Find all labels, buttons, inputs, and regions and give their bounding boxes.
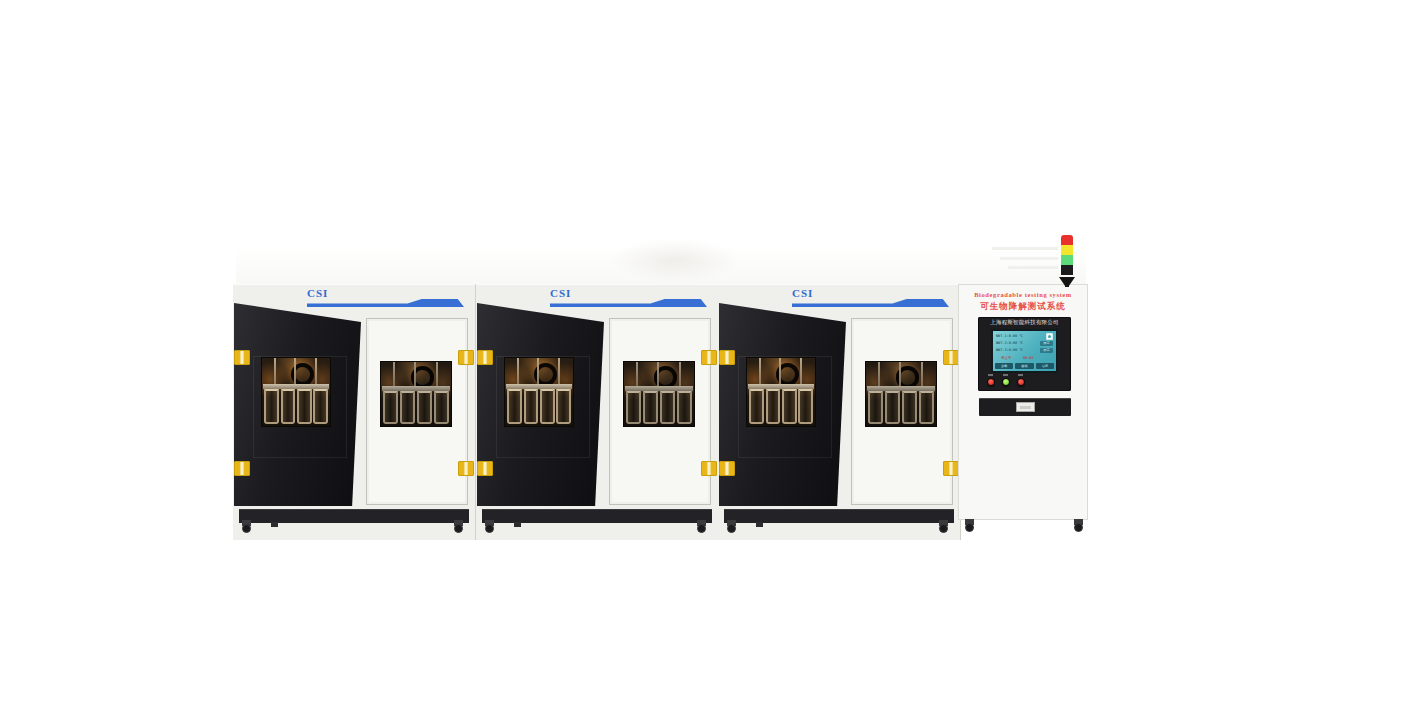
chamber-door-white — [366, 318, 468, 505]
hmi-set-button-2[interactable]: 设定 — [1040, 348, 1053, 353]
company-name: 上海程斯智能科技有限公司 — [978, 319, 1071, 326]
chamber-window — [380, 361, 452, 427]
chamber-door-white — [609, 318, 711, 505]
reactor-bottle — [766, 389, 781, 424]
stirrer-rod — [679, 362, 681, 388]
button-label-mark — [1018, 374, 1023, 376]
hmi-button-row: 参数 曲线 启停 — [995, 363, 1054, 369]
reactor-bottle — [868, 391, 883, 424]
stirrer-rod — [779, 358, 781, 385]
door-hinge-yellow — [458, 350, 474, 365]
power-button[interactable] — [1017, 378, 1025, 386]
chamber-door-white — [851, 318, 953, 505]
reactor-bottle — [297, 389, 312, 424]
caster-wheel — [697, 520, 706, 526]
logo-swoosh-stripe — [307, 299, 464, 307]
stirrer-rod — [315, 358, 317, 385]
caster-wheel — [485, 520, 494, 526]
support-foot — [514, 522, 521, 527]
chamber-window — [261, 357, 331, 427]
chamber-window — [623, 361, 695, 427]
reactor-bottle — [782, 389, 797, 424]
caster-wheel — [965, 519, 974, 525]
support-foot — [756, 522, 763, 527]
reactor-bottle — [417, 391, 432, 424]
stirrer-rod — [517, 358, 519, 385]
hmi-status: 停止中 — [1001, 356, 1012, 360]
chamber-window — [865, 361, 937, 427]
reactor-bottles — [264, 389, 328, 424]
stirrer-rod — [759, 358, 761, 385]
system-title-en: Biodegradable testing system — [959, 291, 1087, 298]
reactor-bottles — [383, 391, 449, 424]
printer-slot — [1016, 402, 1035, 412]
logo-swoosh-stripe — [792, 299, 949, 307]
door-hinge-yellow — [234, 461, 250, 476]
door-hinge-yellow — [943, 350, 959, 365]
reactor-bottles-scene — [865, 361, 937, 427]
hmi-reading-3: NBT-3:0.00 ℃ — [996, 348, 1023, 352]
reactor-bottle — [643, 391, 658, 424]
biodegradable-testing-system-photo: CSI — [0, 0, 1403, 703]
reactor-bottle — [556, 389, 571, 424]
wall-reflection — [1008, 266, 1058, 269]
wall-reflection — [1000, 257, 1058, 260]
reactor-bottles-scene — [380, 361, 452, 427]
tower-pole — [1065, 283, 1069, 287]
reactor-bottle — [264, 389, 279, 424]
touchscreen[interactable]: NBT-1:0.00 ℃ NBT-2:0.00 ℃ 设定 NBT-3:0.00 … — [991, 329, 1058, 373]
reactor-bottles-scene — [746, 357, 816, 427]
door-hinge-yellow — [234, 350, 250, 365]
hmi-params-button[interactable]: 参数 — [995, 363, 1013, 369]
door-hinge-yellow — [719, 461, 735, 476]
button-label-mark — [988, 374, 993, 376]
test-chamber-unit-3: CSI — [718, 284, 961, 540]
stirrer-rod — [414, 362, 416, 388]
reactor-bottle — [540, 389, 555, 424]
door-hinge-yellow — [943, 461, 959, 476]
door-hinge-yellow — [477, 461, 493, 476]
reactor-bottles-scene — [504, 357, 574, 427]
stirrer-rod — [294, 358, 296, 385]
reactor-bottle — [798, 389, 813, 424]
stirrer-rod — [657, 362, 659, 388]
base-frame — [239, 509, 469, 523]
reactor-bottles — [749, 389, 813, 424]
tower-base-segment — [1061, 265, 1073, 275]
stirrer-rod — [537, 358, 539, 385]
top-shadow — [610, 238, 740, 282]
stop-button[interactable] — [987, 378, 995, 386]
reactor-bottles — [626, 391, 692, 424]
reactor-bottle — [677, 391, 692, 424]
hmi-logo-icon — [1046, 333, 1053, 340]
hmi-curve-button[interactable]: 曲线 — [1015, 363, 1033, 369]
stirrer-rod — [393, 362, 395, 388]
caster-wheel — [1074, 519, 1083, 525]
reactor-bottle — [626, 391, 641, 424]
chamber-window — [746, 357, 816, 427]
reactor-bottle — [434, 391, 449, 424]
reactor-bottles — [507, 389, 571, 424]
stirrer-rod — [636, 362, 638, 388]
base-frame — [482, 509, 712, 523]
door-hinge-yellow — [719, 350, 735, 365]
stirrer-rod — [878, 362, 880, 388]
reactor-bottle — [749, 389, 764, 424]
reactor-bottle — [524, 389, 539, 424]
logo-swoosh-stripe — [550, 299, 707, 307]
tower-red-light — [1061, 235, 1073, 245]
run-button[interactable] — [1002, 378, 1010, 386]
wall-reflection — [992, 247, 1058, 250]
hmi-timer: 00:00 — [1023, 356, 1034, 360]
reactor-bottle — [919, 391, 934, 424]
hmi-reading-2: NBT-2:0.00 ℃ — [996, 341, 1023, 345]
reactor-bottle — [902, 391, 917, 424]
test-chamber-unit-2: CSI — [476, 284, 719, 540]
reactor-bottle — [400, 391, 415, 424]
stirrer-rod — [800, 358, 802, 385]
system-title-zh: 可生物降解测试系统 — [959, 301, 1087, 313]
reactor-bottles-scene — [261, 357, 331, 427]
tower-green-light — [1061, 255, 1073, 265]
reactor-bottles-scene — [623, 361, 695, 427]
stirrer-rod — [436, 362, 438, 388]
reactor-bottle — [383, 391, 398, 424]
reactor-bottle — [281, 389, 296, 424]
tower-yellow-light — [1061, 245, 1073, 255]
reactor-bottles — [868, 391, 934, 424]
hmi-startstop-button[interactable]: 启停 — [1036, 363, 1054, 369]
button-label-mark — [1003, 374, 1008, 376]
control-cabinet: Biodegradable testing system 可生物降解测试系统 上… — [958, 284, 1088, 520]
support-foot — [271, 522, 278, 527]
reactor-bottle — [660, 391, 675, 424]
door-hinge-yellow — [701, 461, 717, 476]
csi-logo: CSI — [307, 287, 328, 299]
control-panel: 上海程斯智能科技有限公司 NBT-1:0.00 ℃ NBT-2:0.00 ℃ 设… — [978, 317, 1071, 391]
base-frame — [724, 509, 954, 523]
reactor-bottle — [885, 391, 900, 424]
door-hinge-yellow — [477, 350, 493, 365]
stirrer-rod — [899, 362, 901, 388]
hmi-reading-1: NBT-1:0.00 ℃ — [996, 334, 1023, 338]
reactor-bottle — [507, 389, 522, 424]
accessory-panel — [979, 398, 1071, 416]
signal-tower-light — [1061, 235, 1073, 275]
caster-wheel — [242, 520, 251, 526]
caster-wheel — [454, 520, 463, 526]
csi-logo: CSI — [792, 287, 813, 299]
reactor-bottle — [313, 389, 328, 424]
chamber-window — [504, 357, 574, 427]
door-hinge-yellow — [458, 461, 474, 476]
hmi-set-button-1[interactable]: 设定 — [1040, 341, 1053, 346]
caster-wheel — [939, 520, 948, 526]
csi-logo: CSI — [550, 287, 571, 299]
test-chamber-unit-1: CSI — [233, 284, 476, 540]
door-hinge-yellow — [701, 350, 717, 365]
stirrer-rod — [274, 358, 276, 385]
caster-wheel — [727, 520, 736, 526]
stirrer-rod — [558, 358, 560, 385]
stirrer-rod — [921, 362, 923, 388]
